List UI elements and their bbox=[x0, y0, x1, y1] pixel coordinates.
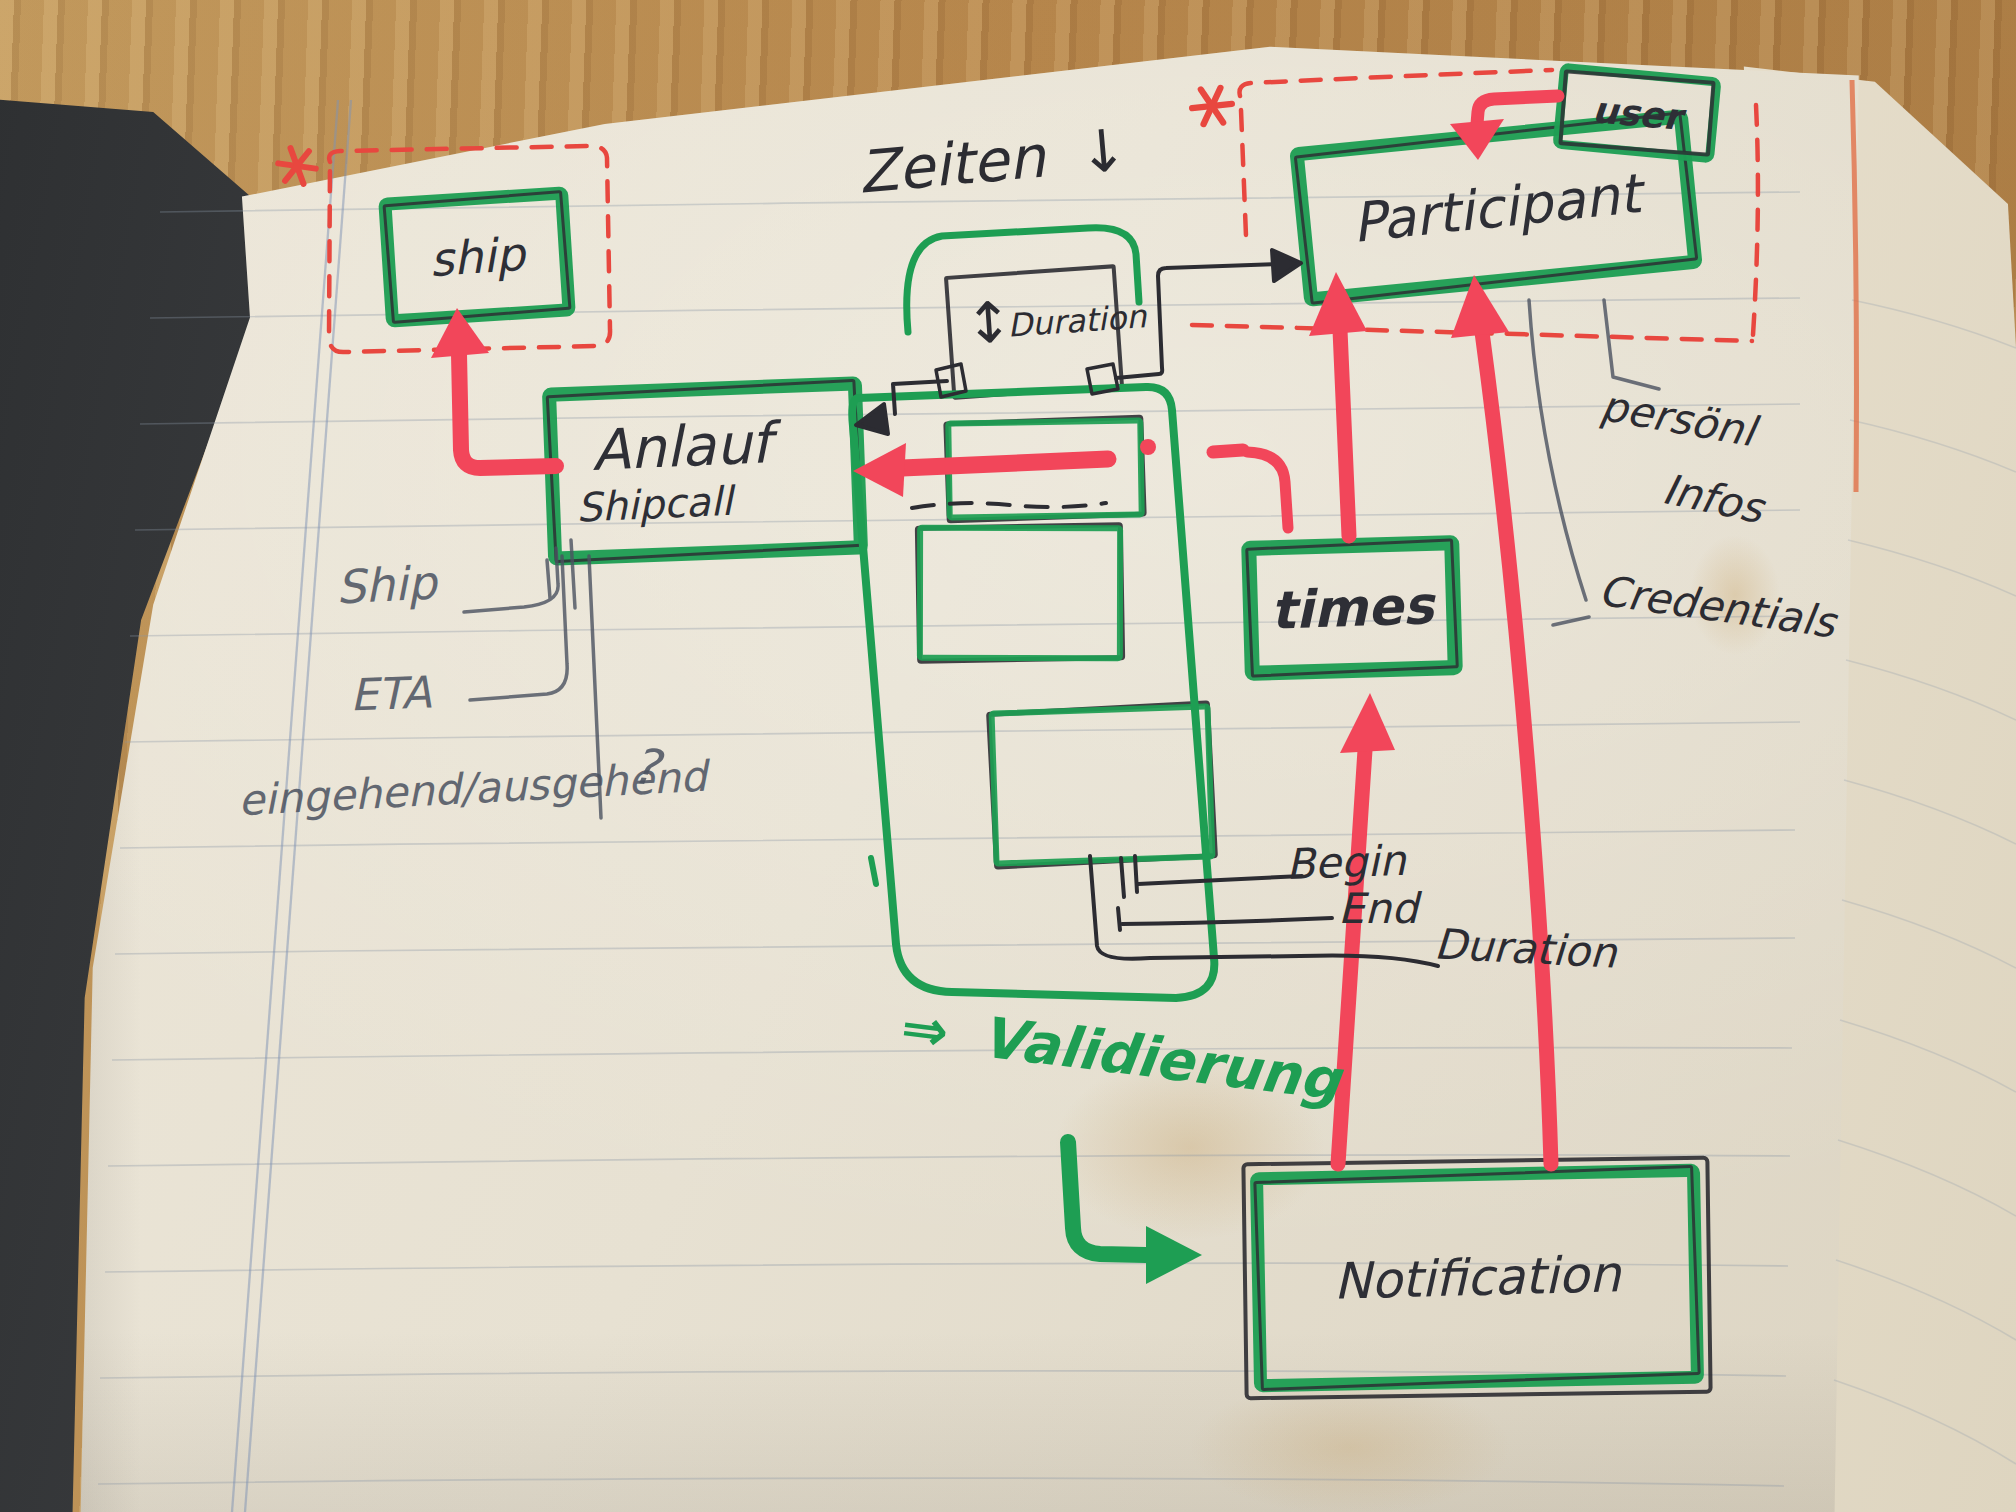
credentials-connector bbox=[1529, 300, 1586, 600]
dashed-divider bbox=[912, 503, 1106, 508]
eta-attr-connector bbox=[470, 556, 567, 700]
asterisk-icon bbox=[1190, 86, 1233, 125]
zeiten-bracket bbox=[907, 228, 1139, 332]
times-group-container bbox=[852, 387, 1214, 998]
diagram-ink-layer bbox=[0, 0, 2016, 1512]
notification-arrowhead bbox=[1146, 1226, 1202, 1284]
begin-attribute-label: Begin bbox=[1285, 840, 1406, 886]
end-attribute-label: End bbox=[1338, 888, 1418, 930]
asterisk-icon bbox=[276, 147, 318, 186]
times-to-shipcall-arrow bbox=[902, 459, 1108, 468]
duration-to-shipcall-arrowhead bbox=[856, 404, 888, 434]
ship-dashed-region bbox=[329, 146, 610, 352]
duration-attribute-label: Duration bbox=[1433, 923, 1617, 974]
notification-to-participant-arrow bbox=[1482, 332, 1551, 1164]
red-marker-arrows bbox=[459, 96, 1558, 1164]
duration-to-participant-arrowhead bbox=[1272, 250, 1301, 281]
ship-attr-connector bbox=[464, 548, 558, 612]
down-arrow-icon: ↓ bbox=[1076, 115, 1130, 187]
end-connector bbox=[1122, 918, 1332, 924]
notification-arrow bbox=[1068, 1142, 1146, 1255]
double-arrow-icon: ⇒ bbox=[898, 994, 952, 1064]
personal-info-connector bbox=[1604, 300, 1659, 389]
shipcall-to-ship-arrow bbox=[459, 354, 556, 468]
notebook-photo: ship Anlauf Shipcall Participant user ti… bbox=[0, 0, 2016, 1512]
times-to-participant-arrow bbox=[1340, 330, 1349, 536]
ship-attribute-label: Ship bbox=[335, 559, 438, 610]
begin-connector bbox=[1138, 876, 1302, 884]
eta-attribute-label: ETA bbox=[349, 671, 432, 718]
